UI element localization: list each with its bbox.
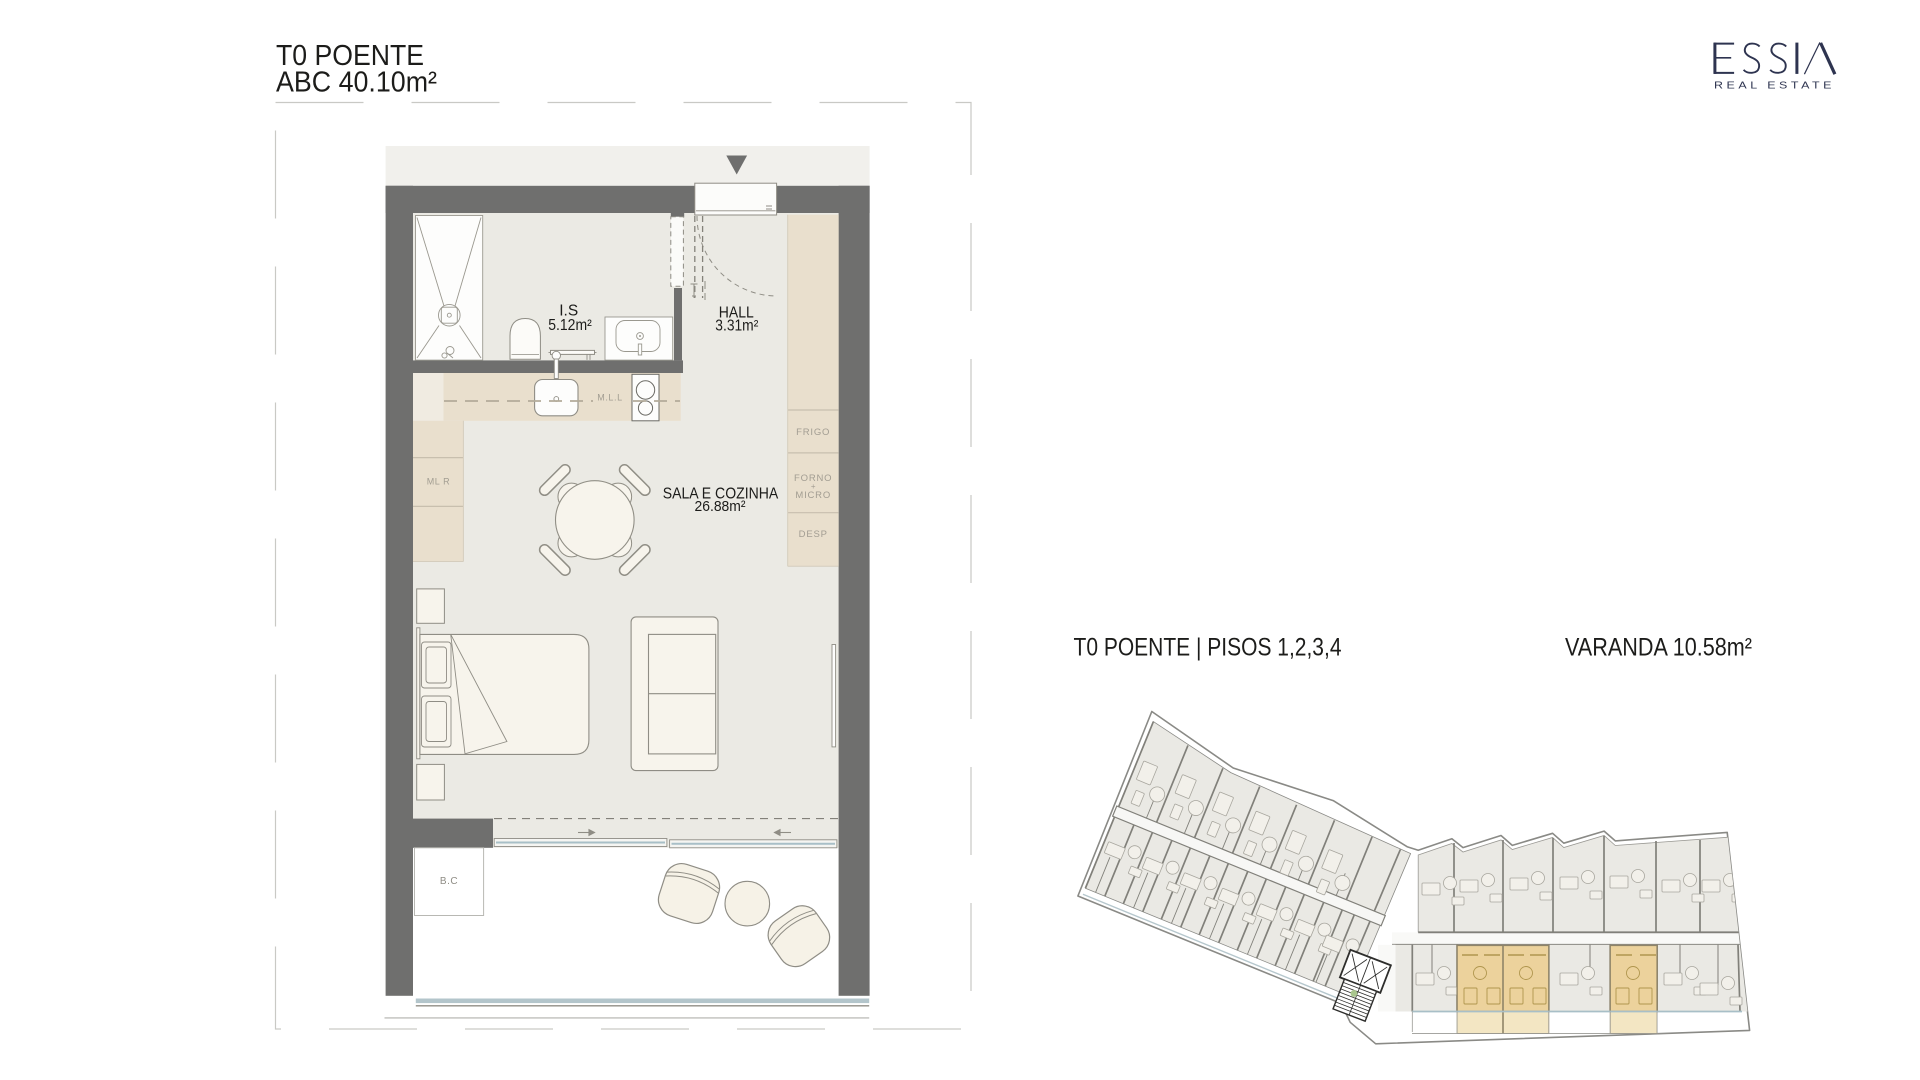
svg-text:T0 POENTE | PISOS 1,2,3,4: T0 POENTE | PISOS 1,2,3,4	[1074, 634, 1342, 662]
svg-text:DESP: DESP	[799, 529, 828, 540]
svg-text:26.88m²: 26.88m²	[695, 498, 746, 515]
svg-text:ABC 40.10m²: ABC 40.10m²	[276, 67, 437, 99]
svg-text:VARANDA 10.58m²: VARANDA 10.58m²	[1565, 634, 1752, 662]
svg-text:3.31m²: 3.31m²	[715, 317, 758, 334]
svg-text:MICRO: MICRO	[795, 490, 831, 501]
svg-text:ML R: ML R	[427, 477, 451, 487]
svg-text:M.L.L: M.L.L	[597, 393, 623, 403]
svg-text:5.12m²: 5.12m²	[548, 317, 592, 334]
svg-text:REAL ESTATE: REAL ESTATE	[1714, 80, 1835, 92]
svg-text:B.C: B.C	[440, 876, 458, 887]
svg-text:FRIGO: FRIGO	[796, 427, 830, 438]
